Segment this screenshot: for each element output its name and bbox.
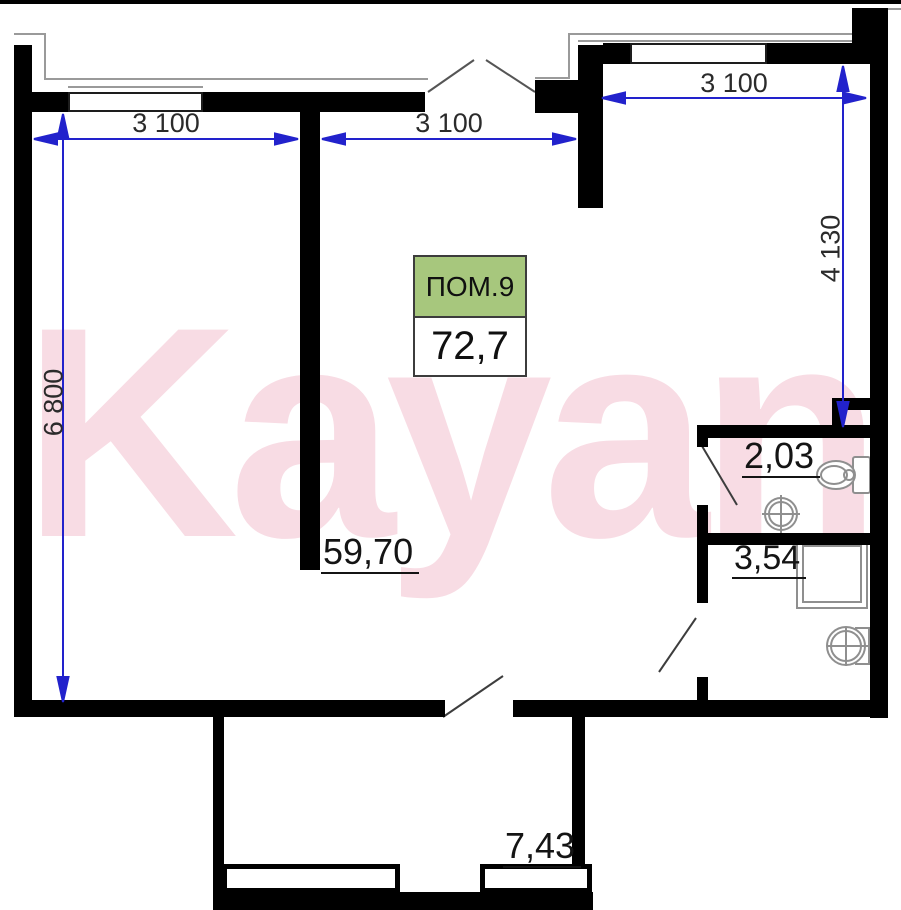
contour-line xyxy=(44,33,46,80)
door-line-balcony xyxy=(443,676,503,717)
wall-bottom-left xyxy=(14,700,445,717)
contour-line xyxy=(535,77,568,79)
window-balcony-right xyxy=(485,869,587,888)
window-top-right xyxy=(630,43,767,64)
wall-left xyxy=(14,45,32,717)
wall-top-step xyxy=(535,80,578,113)
contour-line xyxy=(888,8,901,10)
dimension-right: 4 130 xyxy=(818,189,845,309)
unit-name: ПОМ.9 xyxy=(415,257,525,318)
area-wc: 2,03 xyxy=(742,438,820,478)
area-bathroom: 3,54 xyxy=(732,541,806,579)
dimension-top-right: 3 100 xyxy=(674,70,794,97)
unit-label-box: ПОМ.9 72,7 xyxy=(413,255,527,377)
window-sill-line xyxy=(44,78,428,80)
dimension-top-left: 3 100 xyxy=(106,110,226,137)
window-sill-line xyxy=(68,86,203,88)
wall-bath-left-mid xyxy=(697,505,708,603)
wall-top-left-a xyxy=(32,92,68,112)
wall-top-left-b xyxy=(203,92,425,112)
wall-top-right-a xyxy=(603,43,630,64)
wall-balcony-bottom xyxy=(213,892,593,910)
unit-total-area: 72,7 xyxy=(415,318,525,375)
wall-bottom-right xyxy=(513,700,888,717)
floor-plan: Kayan xyxy=(0,0,901,910)
wall-top-strip xyxy=(0,0,901,4)
area-balcony: 7,43 xyxy=(503,828,581,868)
dimension-left: 6 800 xyxy=(41,343,68,463)
contour-line xyxy=(568,33,570,79)
contour-line xyxy=(14,33,46,35)
door-line-bath xyxy=(659,618,696,672)
wall-break-icon xyxy=(428,60,535,92)
wall-bath-left-stub-top xyxy=(697,425,708,447)
wall-bath-left-stub-bottom xyxy=(697,677,708,700)
window-sill-line xyxy=(578,40,852,42)
wall-duct-vertical xyxy=(832,398,844,428)
window-balcony-left xyxy=(227,869,395,888)
window-sill-line xyxy=(568,33,852,35)
wall-jog-vertical xyxy=(578,45,603,208)
area-living-room: 59,70 xyxy=(321,534,419,574)
wall-right xyxy=(870,43,888,718)
washbasin-icon xyxy=(827,627,869,666)
dimension-top-middle: 3 100 xyxy=(389,110,509,137)
wall-interior xyxy=(300,112,320,570)
